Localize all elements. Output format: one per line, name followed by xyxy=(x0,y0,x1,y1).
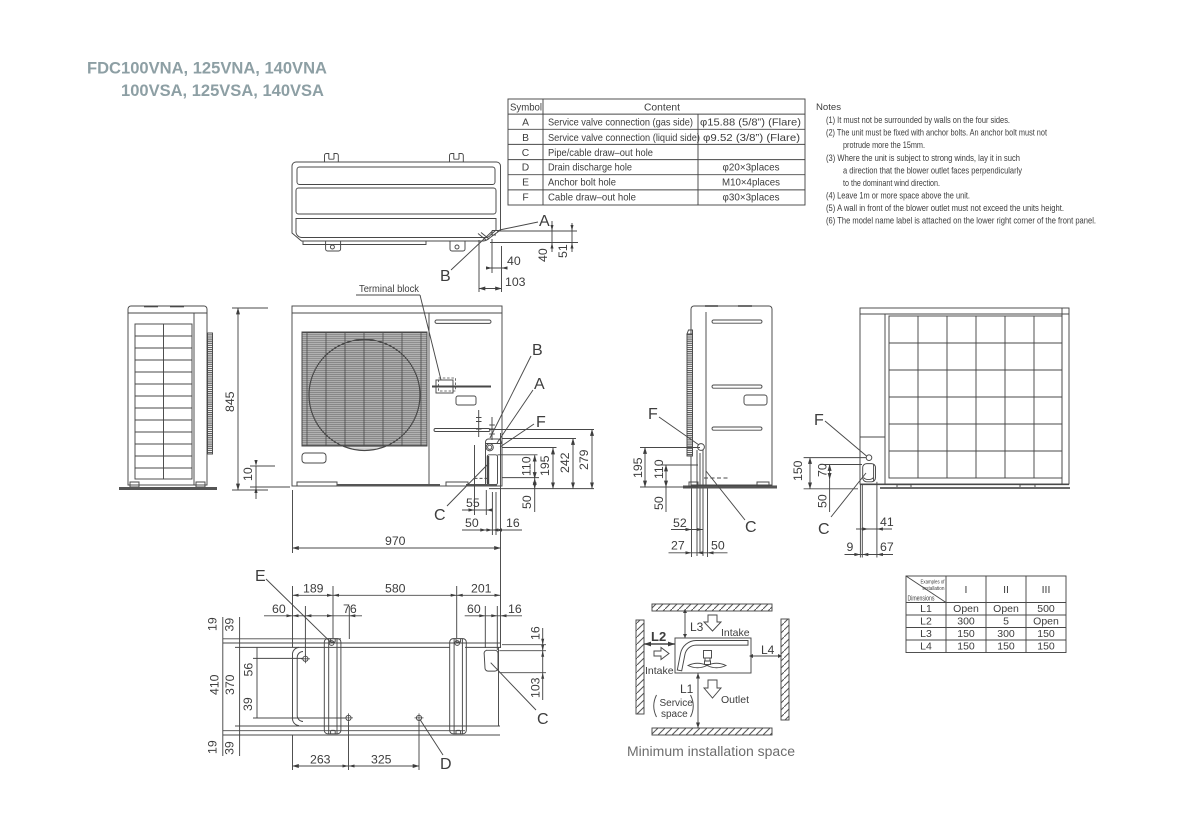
svg-text:F: F xyxy=(522,193,528,204)
svg-text:L4: L4 xyxy=(920,641,932,653)
svg-text:110: 110 xyxy=(652,459,666,479)
svg-text:50: 50 xyxy=(520,495,534,509)
svg-text:40: 40 xyxy=(507,254,521,268)
svg-text:242: 242 xyxy=(558,452,572,473)
svg-text:189: 189 xyxy=(303,582,324,596)
svg-text:16: 16 xyxy=(508,602,522,616)
svg-text:103: 103 xyxy=(529,677,543,698)
svg-text:(2) The unit must be fixed wi: (2) The unit must be fixed with anchor b… xyxy=(826,128,1047,139)
svg-text:F: F xyxy=(536,414,546,431)
svg-text:Minimum installation space: Minimum installation space xyxy=(627,744,795,760)
svg-text:A: A xyxy=(534,376,545,393)
svg-text:L2: L2 xyxy=(651,629,666,644)
svg-text:19: 19 xyxy=(206,740,220,754)
svg-text:19: 19 xyxy=(206,617,220,631)
svg-text:60: 60 xyxy=(467,602,481,616)
svg-text:110: 110 xyxy=(520,456,534,476)
svg-text:F: F xyxy=(648,406,658,423)
svg-text:Open: Open xyxy=(993,603,1019,615)
svg-text:40: 40 xyxy=(536,248,550,262)
svg-text:67: 67 xyxy=(880,540,894,554)
svg-text:263: 263 xyxy=(310,753,331,767)
svg-text:I: I xyxy=(965,584,968,596)
svg-text:150: 150 xyxy=(997,641,1015,653)
svg-text:50: 50 xyxy=(816,494,830,508)
svg-text:39: 39 xyxy=(222,741,236,755)
svg-text:Symbol: Symbol xyxy=(510,103,542,114)
svg-text:50: 50 xyxy=(465,516,479,530)
svg-text:III: III xyxy=(1042,584,1051,596)
svg-text:φ9.52 (3/8”) (Flare): φ9.52 (3/8”) (Flare) xyxy=(703,133,800,144)
svg-text:(5) A wall in front of the bl: (5) A wall in front of the blower outlet… xyxy=(826,203,1064,214)
svg-text:201: 201 xyxy=(471,582,492,596)
svg-text:Open: Open xyxy=(1033,616,1059,628)
svg-text:41: 41 xyxy=(880,515,894,529)
svg-text:C: C xyxy=(434,507,446,524)
svg-text:Intake: Intake xyxy=(645,665,674,677)
svg-text:325: 325 xyxy=(371,753,392,767)
svg-text:Drain discharge hole: Drain discharge hole xyxy=(548,162,632,173)
svg-text:Dimensions: Dimensions xyxy=(908,594,935,603)
svg-text:100VSA, 125VSA, 140VSA: 100VSA, 125VSA, 140VSA xyxy=(121,81,324,100)
svg-text:M10×4places: M10×4places xyxy=(722,177,780,188)
svg-text:39: 39 xyxy=(241,697,255,711)
svg-text:φ20×3places: φ20×3places xyxy=(723,162,780,173)
svg-text:L4: L4 xyxy=(761,643,775,657)
svg-text:(4) Leave 1m or more space ab: (4) Leave 1m or more space above the uni… xyxy=(826,191,970,202)
svg-text:103: 103 xyxy=(505,275,526,289)
svg-text:C: C xyxy=(537,711,549,728)
svg-text:76: 76 xyxy=(343,602,357,616)
svg-text:56: 56 xyxy=(242,663,256,677)
svg-text:500: 500 xyxy=(1037,603,1055,615)
svg-text:A: A xyxy=(539,213,550,230)
svg-text:970: 970 xyxy=(385,534,406,548)
svg-text:70: 70 xyxy=(816,463,830,477)
svg-text:II: II xyxy=(1003,584,1009,596)
svg-text:B: B xyxy=(532,342,543,359)
svg-text:50: 50 xyxy=(711,539,725,553)
svg-text:300: 300 xyxy=(957,616,975,628)
svg-text:845: 845 xyxy=(223,391,237,412)
svg-text:A: A xyxy=(522,118,529,129)
svg-text:to the dominant wind direction: to the dominant wind direction. xyxy=(843,178,940,189)
svg-text:150: 150 xyxy=(1037,641,1055,653)
svg-text:(3) Where the unit is subject: (3) Where the unit is subject to strong … xyxy=(826,153,1020,164)
svg-text:Examples of: Examples of xyxy=(921,580,945,586)
svg-text:(1) It must not be surrounded: (1) It must not be surrounded by walls o… xyxy=(826,115,1010,126)
svg-text:a direction that the blower ou: a direction that the blower outlet faces… xyxy=(843,166,1022,177)
svg-text:370: 370 xyxy=(223,674,237,695)
svg-text:E: E xyxy=(255,568,266,585)
svg-text:D: D xyxy=(522,162,529,173)
svg-text:195: 195 xyxy=(631,457,645,478)
svg-text:Service valve connection (gas: Service valve connection (gas side) xyxy=(548,118,693,129)
svg-text:5: 5 xyxy=(1003,616,1009,628)
svg-text:L3: L3 xyxy=(690,620,704,634)
svg-text:φ15.88 (5/8”) (Flare): φ15.88 (5/8”) (Flare) xyxy=(700,118,801,129)
svg-text:55: 55 xyxy=(466,496,480,510)
svg-text:Intake: Intake xyxy=(721,627,750,639)
svg-text:installation: installation xyxy=(923,586,945,592)
svg-text:150: 150 xyxy=(1037,628,1055,640)
svg-text:Outlet: Outlet xyxy=(721,694,749,706)
svg-text:300: 300 xyxy=(997,628,1015,640)
svg-text:C: C xyxy=(745,519,757,536)
svg-text:B: B xyxy=(522,133,529,144)
svg-text:Cable draw–out hole: Cable draw–out hole xyxy=(548,193,636,204)
svg-text:Service valve connection (liqu: Service valve connection (liquid side) xyxy=(548,133,700,144)
svg-text:Anchor bolt hole: Anchor bolt hole xyxy=(548,177,616,188)
svg-text:L2: L2 xyxy=(920,616,932,628)
svg-text:F: F xyxy=(814,412,824,429)
svg-text:52: 52 xyxy=(673,516,687,530)
svg-text:27: 27 xyxy=(671,539,685,553)
svg-text:Pipe/cable draw–out hole: Pipe/cable draw–out hole xyxy=(548,148,653,159)
svg-text:51: 51 xyxy=(556,244,570,258)
svg-text:9: 9 xyxy=(847,540,854,554)
svg-text:195: 195 xyxy=(538,455,552,476)
svg-text:L1: L1 xyxy=(680,682,694,696)
svg-text:Open: Open xyxy=(953,603,979,615)
svg-text:space: space xyxy=(661,709,688,720)
svg-text:protrude more the 15mm.: protrude more the 15mm. xyxy=(843,140,925,151)
svg-text:Service: Service xyxy=(660,698,694,709)
svg-text:150: 150 xyxy=(957,641,975,653)
svg-text:D: D xyxy=(440,756,452,773)
svg-text:50: 50 xyxy=(652,496,666,510)
svg-text:FDC100VNA, 125VNA, 140VNA: FDC100VNA, 125VNA, 140VNA xyxy=(87,59,327,78)
svg-text:B: B xyxy=(440,268,451,285)
svg-text:10: 10 xyxy=(241,467,255,481)
svg-text:L3: L3 xyxy=(920,628,932,640)
svg-text:580: 580 xyxy=(385,582,406,596)
svg-text:φ30×3places: φ30×3places xyxy=(723,193,780,204)
svg-text:Content: Content xyxy=(644,103,680,114)
svg-text:(6) The model name label is a: (6) The model name label is attached on … xyxy=(826,216,1096,227)
svg-text:16: 16 xyxy=(529,626,543,640)
svg-text:39: 39 xyxy=(222,618,236,632)
svg-text:150: 150 xyxy=(957,628,975,640)
svg-text:C: C xyxy=(522,148,530,159)
svg-text:410: 410 xyxy=(208,674,222,695)
svg-text:16: 16 xyxy=(506,516,520,530)
svg-text:E: E xyxy=(522,177,529,188)
svg-text:60: 60 xyxy=(272,602,286,616)
svg-text:150: 150 xyxy=(791,460,805,481)
svg-text:C: C xyxy=(818,521,830,538)
svg-text:279: 279 xyxy=(577,449,591,470)
svg-text:L1: L1 xyxy=(920,603,932,615)
svg-text:Notes: Notes xyxy=(816,102,841,113)
svg-text:Terminal block: Terminal block xyxy=(359,283,420,295)
